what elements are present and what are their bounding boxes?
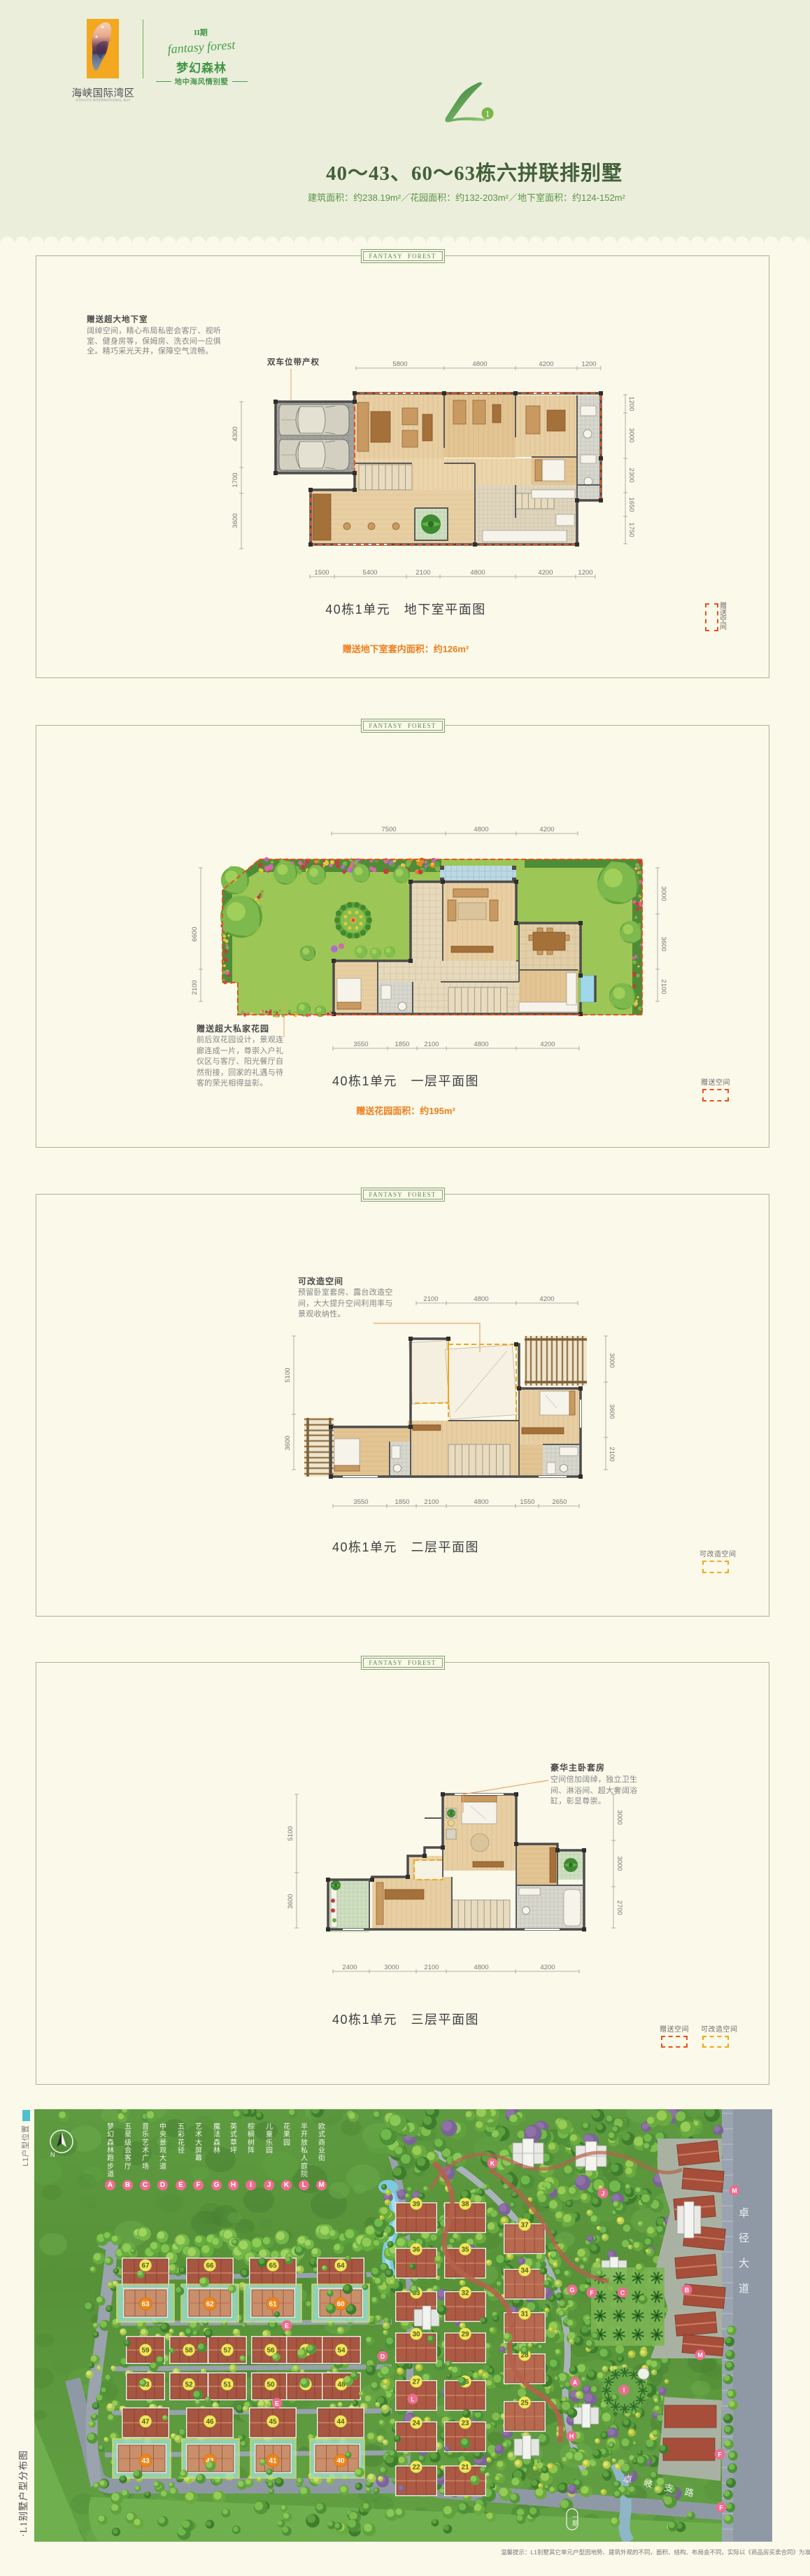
svg-text:1650: 1650 (627, 497, 635, 512)
svg-text:I: I (623, 2387, 625, 2394)
svg-text:66: 66 (206, 2262, 214, 2270)
svg-text:1850: 1850 (395, 1041, 409, 1048)
svg-text:1750: 1750 (627, 522, 635, 537)
svg-text:5100: 5100 (284, 1367, 292, 1382)
svg-text:H: H (569, 2433, 574, 2440)
svg-text:29: 29 (461, 2331, 469, 2339)
svg-text:4200: 4200 (540, 1041, 555, 1048)
svg-text:4800: 4800 (470, 569, 485, 577)
svg-text:1700: 1700 (232, 472, 239, 487)
svg-text:2100: 2100 (608, 1447, 616, 1461)
svg-text:1550: 1550 (520, 1498, 534, 1506)
svg-text:4200: 4200 (538, 569, 553, 577)
svg-text:51: 51 (223, 2381, 232, 2389)
svg-text:4800: 4800 (472, 360, 487, 368)
svg-text:1200: 1200 (578, 569, 592, 577)
svg-text:3000: 3000 (616, 1856, 623, 1871)
svg-text:3000: 3000 (660, 886, 667, 901)
svg-text:N: N (50, 2151, 55, 2158)
svg-text:41: 41 (269, 2458, 277, 2465)
svg-text:5400: 5400 (362, 569, 377, 577)
svg-text:3600: 3600 (232, 513, 239, 528)
svg-text:2100: 2100 (424, 1964, 439, 1971)
svg-text:4800: 4800 (474, 1295, 488, 1303)
svg-text:1200: 1200 (627, 396, 635, 411)
svg-text:34: 34 (520, 2267, 529, 2275)
svg-text:7500: 7500 (381, 826, 396, 833)
svg-text:56: 56 (267, 2347, 275, 2355)
svg-text:2100: 2100 (423, 1295, 438, 1303)
svg-text:2100: 2100 (191, 980, 199, 994)
svg-text:4800: 4800 (474, 1498, 488, 1506)
svg-text:3550: 3550 (353, 1498, 368, 1506)
svg-text:37: 37 (520, 2222, 529, 2230)
svg-text:D: D (381, 2353, 385, 2360)
svg-text:G: G (569, 2287, 574, 2294)
svg-text:50: 50 (267, 2381, 275, 2389)
svg-text:2300: 2300 (627, 467, 635, 482)
svg-text:F: F (719, 2505, 723, 2512)
svg-text:38: 38 (461, 2201, 469, 2209)
svg-text:B: B (685, 2287, 690, 2294)
svg-text:36: 36 (412, 2246, 420, 2254)
svg-text:60: 60 (336, 2301, 345, 2309)
svg-text:4300: 4300 (232, 426, 239, 441)
svg-text:K: K (490, 2160, 495, 2167)
svg-text:2400: 2400 (342, 1964, 357, 1971)
svg-text:61: 61 (269, 2301, 277, 2309)
svg-text:58: 58 (185, 2347, 193, 2355)
svg-text:52: 52 (185, 2381, 193, 2389)
svg-text:59: 59 (141, 2347, 150, 2355)
svg-text:24: 24 (412, 2420, 420, 2428)
svg-text:21: 21 (461, 2464, 469, 2472)
svg-text:3000: 3000 (616, 1810, 623, 1824)
svg-text:44: 44 (336, 2419, 345, 2426)
svg-text:M: M (697, 2352, 703, 2359)
svg-text:32: 32 (461, 2290, 469, 2297)
svg-text:3000: 3000 (627, 428, 635, 442)
svg-text:4800: 4800 (474, 826, 488, 833)
svg-text:4200: 4200 (539, 826, 554, 833)
svg-text:3600: 3600 (284, 1435, 292, 1450)
svg-text:4200: 4200 (539, 1295, 554, 1303)
svg-text:1500: 1500 (314, 569, 329, 577)
svg-text:23: 23 (461, 2420, 469, 2428)
svg-text:22: 22 (412, 2464, 420, 2472)
svg-text:40: 40 (336, 2458, 345, 2465)
svg-text:46: 46 (206, 2419, 214, 2426)
svg-text:2100: 2100 (660, 979, 667, 994)
svg-text:1200: 1200 (581, 360, 596, 368)
svg-text:J: J (601, 2190, 604, 2197)
svg-text:25: 25 (520, 2400, 529, 2407)
svg-text:L: L (411, 2396, 415, 2403)
svg-text:4800: 4800 (474, 1964, 488, 1971)
svg-text:31: 31 (520, 2311, 529, 2318)
svg-text:3000: 3000 (384, 1964, 399, 1971)
svg-text:2100: 2100 (424, 1498, 439, 1506)
svg-text:3600: 3600 (608, 1404, 616, 1419)
svg-text:4800: 4800 (474, 1041, 488, 1048)
svg-text:一期: 一期 (571, 2514, 578, 2527)
svg-text:3600: 3600 (287, 1894, 294, 1908)
svg-text:3550: 3550 (353, 1041, 368, 1048)
svg-text:54: 54 (337, 2347, 346, 2355)
svg-text:39: 39 (412, 2201, 420, 2209)
svg-text:43: 43 (141, 2458, 150, 2465)
svg-text:1: 1 (485, 108, 490, 119)
svg-text:4200: 4200 (540, 1964, 555, 1971)
svg-text:45: 45 (269, 2419, 277, 2426)
svg-text:2100: 2100 (415, 569, 430, 577)
svg-text:47: 47 (141, 2419, 150, 2426)
svg-text:1850: 1850 (395, 1498, 409, 1506)
svg-text:3000: 3000 (608, 1353, 616, 1367)
svg-text:30: 30 (412, 2331, 420, 2339)
svg-text:5100: 5100 (287, 1826, 294, 1840)
svg-text:65: 65 (269, 2262, 277, 2270)
svg-text:27: 27 (412, 2379, 420, 2386)
svg-text:2650: 2650 (552, 1498, 567, 1506)
svg-text:6600: 6600 (191, 927, 199, 941)
svg-text:F: F (718, 2451, 722, 2458)
svg-text:5800: 5800 (392, 360, 407, 368)
svg-text:E: E (275, 2400, 279, 2407)
svg-text:64: 64 (336, 2262, 345, 2270)
svg-text:62: 62 (206, 2301, 214, 2309)
svg-text:35: 35 (461, 2246, 469, 2254)
svg-text:F: F (590, 2290, 594, 2297)
svg-text:M: M (732, 2188, 737, 2195)
svg-text:2100: 2100 (424, 1041, 439, 1048)
svg-text:4200: 4200 (539, 360, 553, 368)
svg-text:A: A (573, 2379, 578, 2386)
svg-text:3600: 3600 (660, 936, 667, 951)
svg-text:2700: 2700 (616, 1900, 623, 1915)
svg-text:fantasy forest: fantasy forest (167, 38, 236, 57)
svg-text:63: 63 (141, 2301, 150, 2309)
svg-text:C: C (620, 2290, 625, 2297)
svg-text:67: 67 (141, 2262, 150, 2270)
svg-text:E: E (285, 2323, 289, 2330)
svg-text:57: 57 (223, 2347, 232, 2355)
